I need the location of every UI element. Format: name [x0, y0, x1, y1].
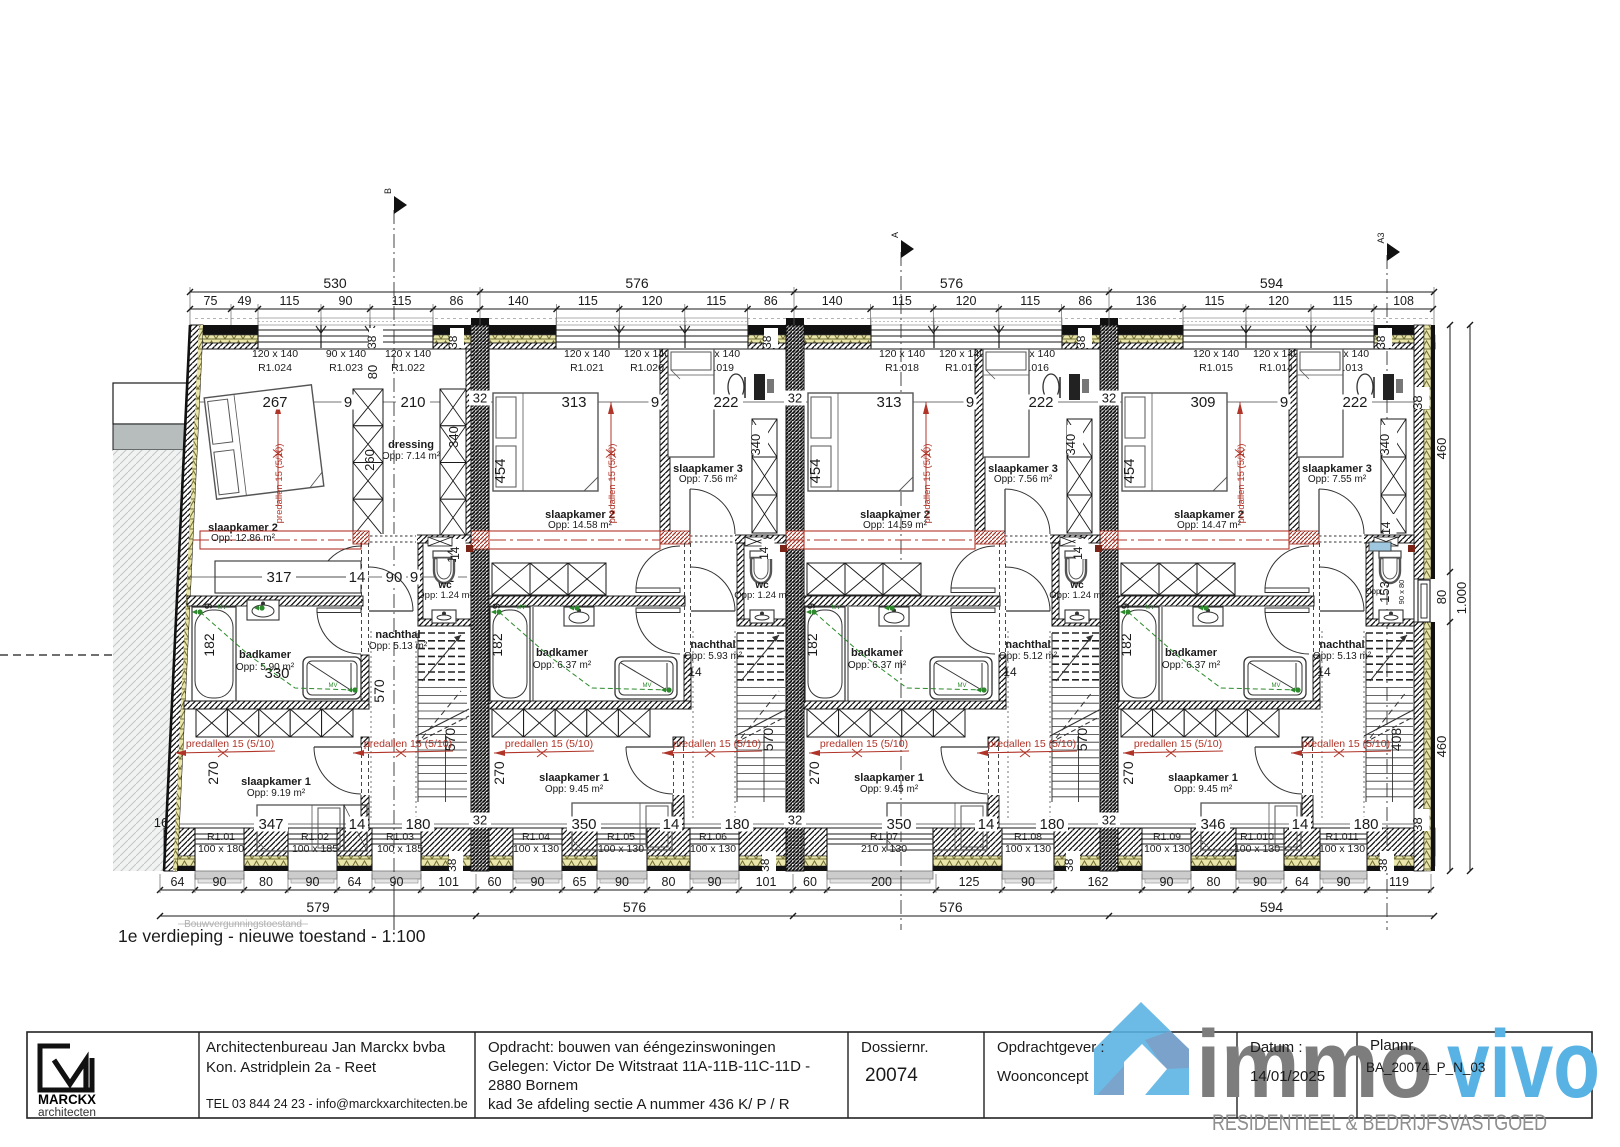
svg-text:80: 80	[259, 875, 273, 889]
svg-text:100 x 180: 100 x 180	[198, 843, 244, 855]
svg-text:100 x 130: 100 x 130	[1005, 843, 1051, 855]
svg-text:90 x 140: 90 x 140	[326, 348, 366, 360]
svg-text:101: 101	[438, 875, 459, 889]
svg-text:90: 90	[390, 875, 404, 889]
svg-text:140: 140	[508, 294, 529, 308]
svg-text:162: 162	[1088, 875, 1109, 889]
svg-text:90: 90	[1160, 875, 1174, 889]
svg-text:nachthal: nachthal	[1319, 639, 1364, 651]
svg-text:576: 576	[940, 275, 964, 291]
svg-text:86: 86	[764, 294, 778, 308]
svg-text:136: 136	[1136, 294, 1157, 308]
svg-text:125: 125	[959, 875, 980, 889]
svg-text:180: 180	[1039, 816, 1064, 833]
svg-text:BA_20074_P_N_03: BA_20074_P_N_03	[1366, 1060, 1485, 1075]
svg-text:R1.05: R1.05	[607, 831, 635, 843]
svg-text:predallen 15 (5/10): predallen 15 (5/10)	[673, 738, 761, 750]
svg-text:101: 101	[756, 875, 777, 889]
svg-text:120 x 140: 120 x 140	[385, 348, 431, 360]
svg-text:140: 140	[822, 294, 843, 308]
svg-text:120 x 140: 120 x 140	[1253, 348, 1299, 360]
svg-text:dressing: dressing	[388, 439, 434, 451]
svg-text:Opp: 14.58 m²: Opp: 14.58 m²	[548, 520, 613, 531]
svg-text:120: 120	[956, 294, 977, 308]
svg-text:R1.010: R1.010	[1240, 831, 1274, 843]
svg-text:267: 267	[262, 394, 287, 411]
svg-text:R1.07: R1.07	[870, 831, 898, 843]
svg-text:badkamer: badkamer	[851, 647, 904, 659]
svg-text:182: 182	[1118, 633, 1134, 657]
svg-text:9: 9	[203, 603, 215, 609]
svg-text:R1.08: R1.08	[1014, 831, 1042, 843]
svg-text:MV: MV	[218, 605, 227, 611]
svg-text:570: 570	[760, 728, 776, 752]
svg-text:90: 90	[531, 875, 545, 889]
svg-text:Datum :: Datum :	[1250, 1039, 1303, 1056]
svg-text:MV: MV	[1146, 605, 1155, 611]
svg-text:64: 64	[1295, 875, 1309, 889]
svg-text:38: 38	[1410, 395, 1425, 409]
svg-text:14: 14	[1071, 546, 1085, 560]
svg-text:nachthal: nachthal	[690, 639, 735, 651]
svg-text:1e verdieping - nieuwe toestan: 1e verdieping - nieuwe toestand - 1:100	[118, 926, 426, 946]
svg-text:115: 115	[392, 294, 412, 308]
svg-text:Opp: 9.45 m²: Opp: 9.45 m²	[860, 784, 919, 795]
svg-text:115: 115	[706, 294, 726, 308]
svg-text:slaapkamer 1: slaapkamer 1	[1168, 772, 1238, 784]
svg-text:38: 38	[760, 335, 774, 349]
svg-text:340: 340	[1063, 434, 1078, 456]
svg-text:38: 38	[1074, 335, 1088, 349]
svg-text:346: 346	[1200, 816, 1225, 833]
svg-text:9: 9	[344, 394, 352, 411]
svg-text:predallen 15 (5/10): predallen 15 (5/10)	[1134, 738, 1222, 750]
svg-text:R1.04: R1.04	[522, 831, 550, 843]
svg-text:MV: MV	[1272, 683, 1281, 689]
svg-text:16: 16	[154, 815, 168, 830]
svg-text:120 x 140: 120 x 140	[939, 348, 985, 360]
svg-text:R1.01: R1.01	[207, 831, 235, 843]
svg-text:9: 9	[491, 603, 503, 609]
svg-text:38: 38	[445, 858, 459, 872]
svg-text:Opp:: Opp:	[1365, 587, 1382, 596]
svg-text:80: 80	[1207, 875, 1221, 889]
svg-text:594: 594	[1260, 275, 1284, 291]
svg-text:32: 32	[788, 391, 802, 406]
svg-text:nachthal: nachthal	[375, 629, 420, 641]
svg-text:100 x 130: 100 x 130	[1234, 843, 1280, 855]
svg-text:14: 14	[663, 816, 680, 833]
svg-text:180: 180	[724, 816, 749, 833]
svg-text:9: 9	[651, 394, 659, 411]
svg-text:MV: MV	[643, 683, 652, 689]
svg-text:B: B	[383, 188, 393, 194]
svg-text:570: 570	[371, 679, 387, 703]
svg-text:Opp: 12.86 m²: Opp: 12.86 m²	[211, 533, 276, 544]
svg-text:64: 64	[171, 875, 185, 889]
svg-text:100 x 130: 100 x 130	[1319, 843, 1365, 855]
svg-text:9: 9	[1120, 603, 1132, 609]
svg-text:32: 32	[473, 391, 487, 406]
svg-text:R1.023: R1.023	[329, 362, 363, 374]
svg-text:Opp: 9.19 m²: Opp: 9.19 m²	[247, 788, 306, 799]
svg-text:MV: MV	[832, 605, 841, 611]
svg-text:R1.022: R1.022	[391, 362, 425, 374]
svg-text:14: 14	[448, 546, 462, 560]
svg-text:576: 576	[623, 899, 647, 915]
svg-text:100 x 185: 100 x 185	[292, 843, 338, 855]
svg-text:330: 330	[264, 665, 289, 682]
svg-text:530: 530	[323, 275, 347, 291]
svg-text:Opp: 9.45 m²: Opp: 9.45 m²	[1174, 784, 1233, 795]
svg-text:210 x 130: 210 x 130	[861, 843, 907, 855]
svg-text:120: 120	[1268, 294, 1289, 308]
svg-text:Opp: 1.24 m²: Opp: 1.24 m²	[1049, 590, 1104, 601]
svg-text:Kon. Astridplein 2a - Reet: Kon. Astridplein 2a - Reet	[206, 1059, 377, 1076]
svg-text:Opp: 14.47 m²: Opp: 14.47 m²	[1177, 520, 1242, 531]
svg-text:R1.017: R1.017	[945, 362, 979, 374]
svg-text:317: 317	[266, 569, 291, 586]
svg-text:R1.018: R1.018	[885, 362, 919, 374]
svg-text:576: 576	[939, 899, 963, 915]
svg-text:108: 108	[1393, 294, 1414, 308]
svg-text:TEL 03 844 24 23 - info@marckx: TEL 03 844 24 23 - info@marckxarchitecte…	[206, 1097, 468, 1111]
svg-text:270: 270	[491, 761, 507, 785]
svg-text:14: 14	[349, 816, 366, 833]
svg-text:340: 340	[748, 434, 763, 456]
svg-text:R1.020: R1.020	[630, 362, 664, 374]
svg-text:R1.02: R1.02	[301, 831, 329, 843]
svg-text:1.000: 1.000	[1454, 582, 1469, 615]
svg-text:182: 182	[489, 633, 505, 657]
svg-text:65: 65	[573, 875, 587, 889]
svg-text:86: 86	[1078, 294, 1092, 308]
svg-text:90: 90	[615, 875, 629, 889]
svg-text:38: 38	[1062, 858, 1076, 872]
svg-text:A: A	[890, 232, 900, 238]
svg-text:100 x 130: 100 x 130	[598, 843, 644, 855]
svg-text:Opp: 9.45 m²: Opp: 9.45 m²	[545, 784, 604, 795]
svg-text:Dossiernr.: Dossiernr.	[861, 1039, 929, 1056]
svg-text:slaapkamer 1: slaapkamer 1	[241, 776, 311, 788]
svg-text:predallen 15 (5/10): predallen 15 (5/10)	[988, 738, 1076, 750]
svg-text:90: 90	[1253, 875, 1267, 889]
svg-text:80: 80	[1434, 590, 1449, 604]
svg-text:14: 14	[688, 665, 702, 679]
svg-text:270: 270	[205, 761, 221, 785]
svg-text:90: 90	[708, 875, 722, 889]
svg-text:115: 115	[1205, 294, 1225, 308]
svg-text:64: 64	[348, 875, 362, 889]
svg-text:Architectenbureau Jan Marckx b: Architectenbureau Jan Marckx bvba	[206, 1039, 446, 1056]
svg-text:Opp: 7.14 m²: Opp: 7.14 m²	[382, 451, 441, 462]
svg-text:Opp: 1.24 m²: Opp: 1.24 m²	[734, 590, 789, 601]
svg-text:90: 90	[306, 875, 320, 889]
svg-text:260: 260	[362, 449, 377, 471]
svg-text:90: 90	[1337, 875, 1351, 889]
svg-text:Opdrachtgever :: Opdrachtgever :	[997, 1039, 1105, 1056]
svg-text:MV: MV	[517, 605, 526, 611]
svg-text:predallen 15 (5/10): predallen 15 (5/10)	[364, 738, 452, 750]
svg-text:347: 347	[258, 816, 283, 833]
svg-text:R1.014: R1.014	[1259, 362, 1293, 374]
svg-text:Opp: 14.59 m²: Opp: 14.59 m²	[863, 520, 928, 531]
svg-text:32: 32	[1102, 391, 1116, 406]
svg-text:R1.09: R1.09	[1153, 831, 1181, 843]
svg-text:slaapkamer 1: slaapkamer 1	[539, 772, 609, 784]
svg-text:MV: MV	[329, 683, 338, 689]
svg-text:14: 14	[349, 569, 366, 586]
svg-text:R1.06: R1.06	[699, 831, 727, 843]
svg-text:Opdracht: bouwen van ééngezins: Opdracht: bouwen van ééngezinswoningen	[488, 1039, 776, 1056]
svg-text:200: 200	[871, 875, 892, 889]
svg-text:80: 80	[365, 365, 380, 379]
svg-text:Plannr.: Plannr.	[1370, 1037, 1417, 1054]
svg-text:570: 570	[1074, 728, 1090, 752]
svg-text:182: 182	[201, 633, 217, 657]
svg-text:115: 115	[1020, 294, 1040, 308]
svg-text:badkamer: badkamer	[1165, 647, 1218, 659]
svg-text:350: 350	[571, 816, 596, 833]
svg-text:14: 14	[1379, 521, 1393, 535]
svg-text:predallen 15 (5/10): predallen 15 (5/10)	[1302, 738, 1390, 750]
svg-text:R1.011: R1.011	[1325, 831, 1358, 843]
svg-text:14: 14	[757, 546, 771, 560]
svg-text:20074: 20074	[865, 1065, 918, 1086]
svg-text:90: 90	[213, 875, 227, 889]
svg-text:14: 14	[1292, 816, 1309, 833]
svg-text:100 x 130: 100 x 130	[690, 843, 736, 855]
svg-text:A3: A3	[1376, 232, 1386, 243]
svg-text:9: 9	[966, 394, 974, 411]
svg-text:408: 408	[1388, 728, 1404, 752]
svg-text:38: 38	[1376, 858, 1390, 872]
svg-text:MARCKX: MARCKX	[38, 1092, 96, 1107]
svg-text:576: 576	[625, 275, 649, 291]
svg-text:454: 454	[1121, 458, 1138, 483]
svg-text:222: 222	[1028, 394, 1053, 411]
svg-text:32: 32	[1102, 813, 1116, 828]
svg-text:R1.021: R1.021	[570, 362, 604, 374]
svg-text:badkamer: badkamer	[536, 647, 589, 659]
svg-text:270: 270	[806, 761, 822, 785]
svg-text:60: 60	[803, 875, 817, 889]
svg-text:R1.015: R1.015	[1199, 362, 1233, 374]
svg-text:120 x 140: 120 x 140	[879, 348, 925, 360]
svg-text:270: 270	[1120, 761, 1136, 785]
svg-text:309: 309	[1190, 394, 1215, 411]
svg-text:RESIDENTIEEL & BEDRIJFSVASTGOE: RESIDENTIEEL & BEDRIJFSVASTGOED	[1212, 1110, 1547, 1135]
svg-text:9: 9	[1280, 394, 1288, 411]
svg-text:100 x 130: 100 x 130	[1144, 843, 1190, 855]
svg-text:14: 14	[978, 816, 995, 833]
svg-text:75: 75	[204, 294, 218, 308]
svg-text:Opp: 7.56 m²: Opp: 7.56 m²	[994, 474, 1053, 485]
svg-text:454: 454	[492, 458, 509, 483]
svg-text:9: 9	[410, 569, 418, 586]
svg-text:115: 115	[892, 294, 912, 308]
svg-text:115: 115	[578, 294, 598, 308]
svg-text:49: 49	[238, 294, 252, 308]
svg-text:120: 120	[642, 294, 663, 308]
svg-text:182: 182	[804, 633, 820, 657]
svg-text:60: 60	[488, 875, 502, 889]
svg-text:38: 38	[365, 335, 379, 349]
svg-text:313: 313	[561, 394, 586, 411]
svg-text:38: 38	[1374, 335, 1388, 349]
svg-text:38: 38	[446, 335, 460, 349]
svg-text:90: 90	[339, 294, 353, 308]
svg-text:579: 579	[306, 899, 330, 915]
svg-text:nachthal: nachthal	[1005, 639, 1050, 651]
svg-text:predallen 15 (5/10): predallen 15 (5/10)	[505, 738, 593, 750]
svg-text:460: 460	[1434, 736, 1449, 758]
svg-text:Opp: 1.24 m²: Opp: 1.24 m²	[417, 590, 472, 601]
svg-text:9: 9	[806, 603, 818, 609]
svg-text:Woonconcept: Woonconcept	[997, 1068, 1089, 1085]
svg-text:Opp: 7.55 m²: Opp: 7.55 m²	[1308, 474, 1367, 485]
svg-text:210: 210	[400, 394, 425, 411]
svg-text:120 x 140: 120 x 140	[564, 348, 610, 360]
svg-text:454: 454	[807, 458, 824, 483]
svg-text:Opp: 5.13 m²: Opp: 5.13 m²	[369, 641, 428, 652]
svg-text:90: 90	[1021, 875, 1035, 889]
svg-text:predallen 15 (5/10): predallen 15 (5/10)	[186, 738, 274, 750]
svg-text:120 x 140: 120 x 140	[252, 348, 298, 360]
svg-text:slaapkamer 1: slaapkamer 1	[854, 772, 924, 784]
svg-text:340: 340	[1377, 434, 1392, 456]
svg-text:120 x 140: 120 x 140	[624, 348, 670, 360]
svg-text:86: 86	[450, 294, 464, 308]
svg-text:460: 460	[1434, 438, 1449, 460]
svg-text:14: 14	[1003, 665, 1017, 679]
svg-text:32: 32	[473, 813, 487, 828]
svg-text:38: 38	[758, 858, 772, 872]
svg-text:MV: MV	[958, 683, 967, 689]
svg-text:100 x 130: 100 x 130	[513, 843, 559, 855]
svg-text:architecten: architecten	[38, 1107, 96, 1119]
svg-text:222: 222	[1342, 394, 1367, 411]
svg-text:14/01/2025: 14/01/2025	[1250, 1068, 1325, 1085]
svg-text:222: 222	[713, 394, 738, 411]
svg-text:14: 14	[1317, 665, 1331, 679]
svg-text:badkamer: badkamer	[239, 649, 292, 661]
svg-text:90 x 80: 90 x 80	[1397, 580, 1406, 605]
svg-text:80: 80	[662, 875, 676, 889]
svg-text:100 x 185: 100 x 185	[377, 843, 423, 855]
svg-text:594: 594	[1260, 899, 1284, 915]
svg-text:kad 3e afdeling sectie A numme: kad 3e afdeling sectie A nummer 436 K/ P…	[488, 1096, 790, 1113]
svg-text:119: 119	[1389, 875, 1409, 889]
svg-text:115: 115	[280, 294, 300, 308]
svg-text:313: 313	[876, 394, 901, 411]
svg-text:38: 38	[1410, 817, 1425, 831]
svg-text:120 x 140: 120 x 140	[1193, 348, 1239, 360]
svg-text:32: 32	[788, 813, 802, 828]
svg-text:2880 Bornem: 2880 Bornem	[488, 1077, 578, 1094]
svg-text:R1.024: R1.024	[258, 362, 292, 374]
svg-text:predallen 15 (5/10): predallen 15 (5/10)	[820, 738, 908, 750]
svg-text:Gelegen: Victor De Witstraat 1: Gelegen: Victor De Witstraat 11A-11B-11C…	[488, 1058, 810, 1075]
svg-text:Opp: 7.56 m²: Opp: 7.56 m²	[679, 474, 738, 485]
svg-text:R1.03: R1.03	[386, 831, 414, 843]
svg-text:115: 115	[1333, 294, 1353, 308]
svg-text:340: 340	[446, 426, 461, 448]
